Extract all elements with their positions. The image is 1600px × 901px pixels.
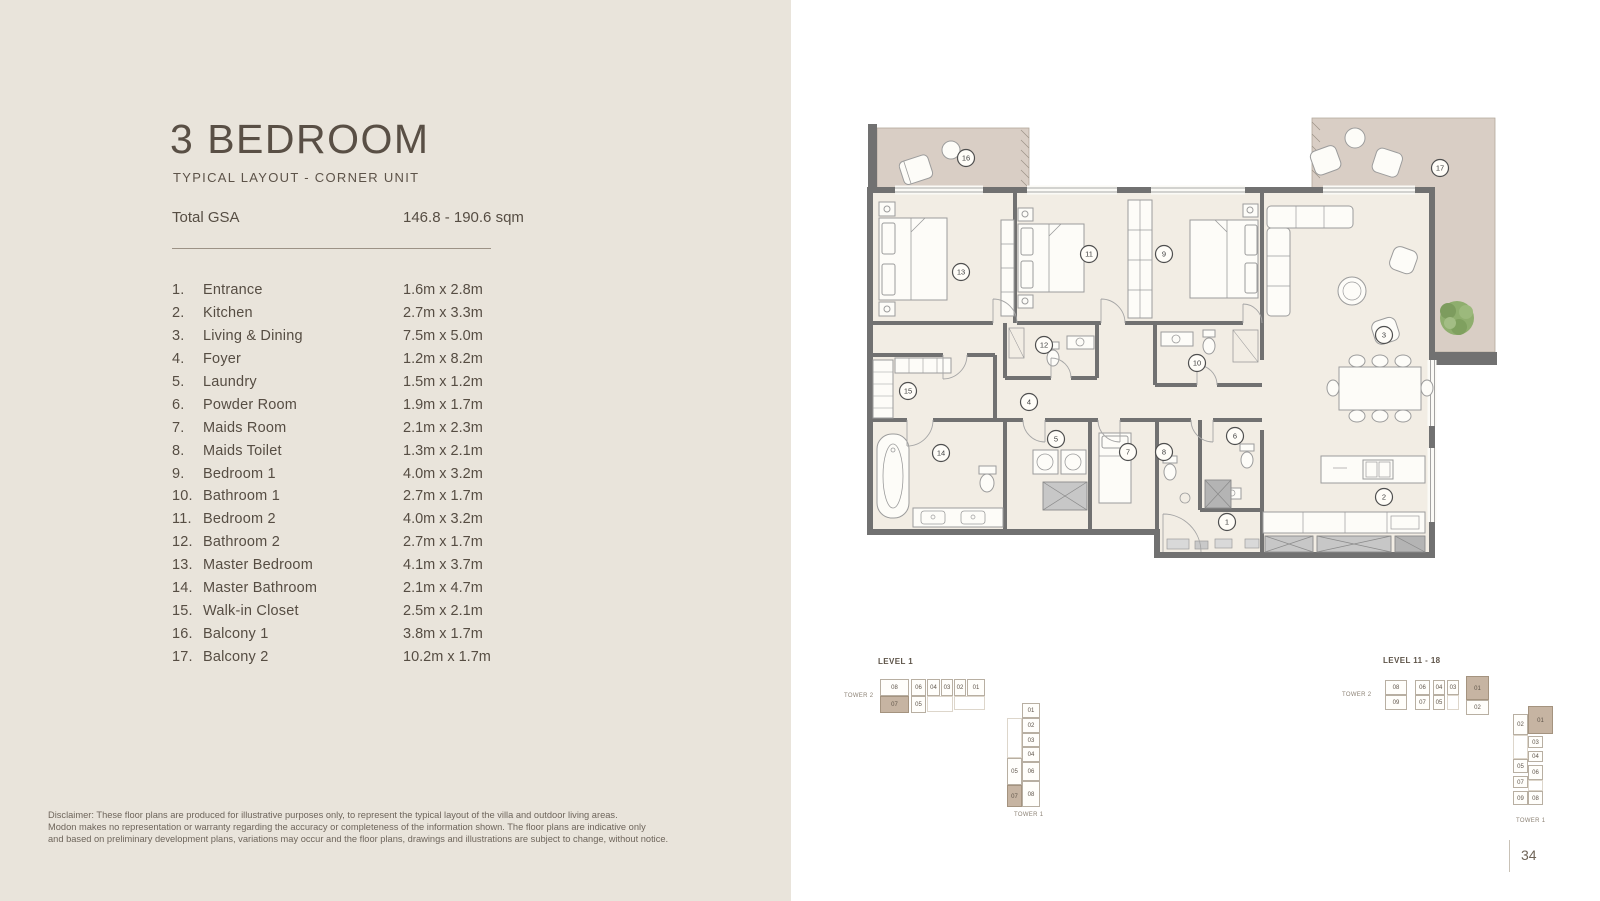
- room-name: Laundry: [203, 374, 403, 390]
- plan-marker-number: 3: [1382, 331, 1386, 340]
- plan-marker-number: 6: [1233, 432, 1237, 441]
- room-number: 17.: [172, 649, 203, 665]
- keyplan-unit-cell: 07: [1007, 785, 1022, 807]
- keyplan-unit-cell: 09: [1513, 791, 1528, 805]
- plan-marker-number: 8: [1162, 448, 1166, 457]
- plan-marker-number: 17: [1436, 164, 1444, 173]
- keyplan-unit-cell: 05: [911, 696, 926, 713]
- room-dimension-list: 1.Entrance1.6m x 2.8m2.Kitchen2.7m x 3.3…: [172, 279, 502, 668]
- room-name: Balcony 1: [203, 626, 403, 642]
- keyplan-title: LEVEL 11 - 18: [1383, 656, 1441, 665]
- keyplan-ghost-cell: [1528, 780, 1543, 791]
- room-dimensions: 2.1m x 2.3m: [403, 420, 502, 436]
- keyplan-tower1-label: TOWER 1: [1516, 818, 1545, 824]
- room-number: 4.: [172, 351, 203, 367]
- room-dimensions: 1.5m x 1.2m: [403, 374, 502, 390]
- page-subtitle: TYPICAL LAYOUT - CORNER UNIT: [173, 170, 419, 185]
- plan-marker-number: 7: [1126, 448, 1130, 457]
- keyplan-unit-cell: 05: [1513, 759, 1528, 773]
- room-number: 13.: [172, 557, 203, 573]
- room-name: Entrance: [203, 282, 403, 298]
- room-row: 1.Entrance1.6m x 2.8m: [172, 279, 502, 302]
- room-name: Kitchen: [203, 305, 403, 321]
- keyplan-ghost-cell: [1007, 718, 1022, 758]
- keyplan-unit-cell: 04: [1433, 680, 1445, 695]
- keyplan-unit-cell: 01: [1528, 706, 1553, 734]
- room-row: 8.Maids Toilet1.3m x 2.1m: [172, 439, 502, 462]
- keyplan-unit-cell: 08: [1022, 781, 1040, 807]
- keyplan-unit-cell: 01: [967, 679, 985, 696]
- keyplan-ghost-cell: [1513, 735, 1528, 759]
- keyplan-unit-cell: 06: [1415, 680, 1430, 695]
- room-name: Master Bathroom: [203, 580, 403, 596]
- keyplan-unit-cell: 08: [880, 679, 909, 696]
- keyplan-title: LEVEL 1: [878, 657, 913, 666]
- room-name: Bedroom 1: [203, 466, 403, 482]
- room-dimensions: 2.7m x 1.7m: [403, 488, 502, 504]
- room-name: Maids Room: [203, 420, 403, 436]
- keyplan-unit-cell: 01: [1466, 676, 1489, 700]
- plan-marker-number: 1: [1225, 518, 1229, 527]
- room-row: 15.Walk-in Closet2.5m x 2.1m: [172, 599, 502, 622]
- keyplan-unit-cell: 07: [1513, 776, 1528, 788]
- room-name: Bathroom 2: [203, 534, 403, 550]
- plan-marker-number: 9: [1162, 250, 1166, 259]
- room-number: 3.: [172, 328, 203, 344]
- room-name: Maids Toilet: [203, 443, 403, 459]
- room-row: 3.Living & Dining7.5m x 5.0m: [172, 325, 502, 348]
- plan-marker-number: 13: [957, 268, 965, 277]
- room-row: 9.Bedroom 14.0m x 3.2m: [172, 462, 502, 485]
- room-row: 14.Master Bathroom2.1m x 4.7m: [172, 577, 502, 600]
- room-name: Powder Room: [203, 397, 403, 413]
- keyplan-unit-cell: 04: [927, 679, 940, 696]
- room-dimensions: 4.0m x 3.2m: [403, 466, 502, 482]
- keyplan-unit-cell: 05: [1007, 758, 1022, 785]
- room-name: Foyer: [203, 351, 403, 367]
- room-dimensions: 1.2m x 8.2m: [403, 351, 502, 367]
- plan-marker-number: 15: [904, 387, 912, 396]
- room-number: 10.: [172, 488, 203, 504]
- keyplan-level-1: LEVEL 1TOWER 2TOWER 10806040302010705010…: [830, 640, 1070, 840]
- room-dimensions: 2.1m x 4.7m: [403, 580, 502, 596]
- keyplan-ghost-cell: [954, 696, 985, 710]
- room-row: 13.Master Bedroom4.1m x 3.7m: [172, 554, 502, 577]
- room-row: 11.Bedroom 24.0m x 3.2m: [172, 508, 502, 531]
- room-dimensions: 3.8m x 1.7m: [403, 626, 502, 642]
- page-number: 34: [1521, 847, 1537, 863]
- room-dimensions: 4.0m x 3.2m: [403, 511, 502, 527]
- room-number: 7.: [172, 420, 203, 436]
- keyplan-ghost-cell: [927, 696, 953, 712]
- keyplan-unit-cell: 06: [1528, 765, 1543, 780]
- room-number: 9.: [172, 466, 203, 482]
- gsa-label: Total GSA: [172, 209, 240, 226]
- divider-line: [172, 248, 491, 249]
- floor-plan: 1234567891011121314151617: [855, 108, 1515, 578]
- keyplan-unit-cell: 06: [911, 679, 926, 696]
- keyplan-tower2-label: TOWER 2: [844, 693, 873, 699]
- brochure-page: 3 BEDROOM TYPICAL LAYOUT - CORNER UNIT T…: [0, 0, 1600, 901]
- keyplan-unit-cell: 02: [1466, 700, 1489, 715]
- plan-marker-number: 11: [1085, 250, 1093, 259]
- plan-marker-number: 12: [1040, 341, 1048, 350]
- plan-marker-number: 2: [1382, 493, 1386, 502]
- keyplan-unit-cell: 02: [1022, 718, 1040, 733]
- keyplan-unit-cell: 06: [1022, 762, 1040, 781]
- page-number-divider: [1509, 840, 1510, 872]
- keyplan-unit-cell: 07: [880, 696, 909, 713]
- keyplan-unit-cell: 07: [1415, 695, 1430, 710]
- keyplan-unit-cell: 02: [954, 679, 966, 696]
- room-number: 15.: [172, 603, 203, 619]
- room-dimensions: 4.1m x 3.7m: [403, 557, 502, 573]
- keyplan-level-11-18: LEVEL 11 - 18TOWER 2TOWER 10806040301090…: [1330, 640, 1570, 840]
- room-number: 1.: [172, 282, 203, 298]
- page-title: 3 BEDROOM: [170, 116, 430, 163]
- room-number: 16.: [172, 626, 203, 642]
- room-number: 8.: [172, 443, 203, 459]
- room-name: Bedroom 2: [203, 511, 403, 527]
- plan-marker-number: 4: [1027, 398, 1031, 407]
- keyplan-unit-cell: 08: [1528, 791, 1543, 805]
- room-row: 5.Laundry1.5m x 1.2m: [172, 371, 502, 394]
- room-row: 7.Maids Room2.1m x 2.3m: [172, 416, 502, 439]
- keyplan-unit-cell: 03: [1022, 733, 1040, 747]
- keyplan-unit-cell: 04: [1528, 751, 1543, 762]
- plant: [1440, 301, 1474, 335]
- keyplan-tower2-label: TOWER 2: [1342, 692, 1371, 698]
- room-row: 4.Foyer1.2m x 8.2m: [172, 348, 502, 371]
- keyplan-unit-cell: 03: [941, 679, 953, 696]
- disclaimer-text: Disclaimer: These floor plans are produc…: [48, 810, 748, 845]
- left-info-panel: 3 BEDROOM TYPICAL LAYOUT - CORNER UNIT T…: [0, 0, 791, 901]
- room-row: 16.Balcony 13.8m x 1.7m: [172, 622, 502, 645]
- room-dimensions: 7.5m x 5.0m: [403, 328, 502, 344]
- room-dimensions: 10.2m x 1.7m: [403, 649, 502, 665]
- keyplan-unit-cell: 03: [1447, 680, 1459, 695]
- room-row: 12.Bathroom 22.7m x 1.7m: [172, 531, 502, 554]
- room-number: 2.: [172, 305, 203, 321]
- room-dimensions: 1.6m x 2.8m: [403, 282, 502, 298]
- plan-marker-number: 10: [1193, 359, 1201, 368]
- room-row: 17.Balcony 210.2m x 1.7m: [172, 645, 502, 668]
- room-dimensions: 2.7m x 1.7m: [403, 534, 502, 550]
- room-number: 12.: [172, 534, 203, 550]
- room-name: Bathroom 1: [203, 488, 403, 504]
- room-name: Master Bedroom: [203, 557, 403, 573]
- keyplan-unit-cell: 01: [1022, 703, 1040, 718]
- room-number: 14.: [172, 580, 203, 596]
- keyplan-unit-cell: 02: [1513, 714, 1528, 735]
- keyplan-unit-cell: 03: [1528, 736, 1543, 748]
- room-row: 6.Powder Room1.9m x 1.7m: [172, 393, 502, 416]
- room-dimensions: 1.9m x 1.7m: [403, 397, 502, 413]
- keyplan-unit-cell: 04: [1022, 747, 1040, 762]
- room-number: 5.: [172, 374, 203, 390]
- room-name: Living & Dining: [203, 328, 403, 344]
- plan-marker-number: 14: [937, 449, 945, 458]
- keyplan-unit-cell: 05: [1433, 695, 1445, 710]
- room-name: Balcony 2: [203, 649, 403, 665]
- plan-marker-number: 16: [962, 154, 970, 163]
- room-number: 6.: [172, 397, 203, 413]
- room-dimensions: 1.3m x 2.1m: [403, 443, 502, 459]
- keyplan-ghost-cell: [1447, 695, 1459, 710]
- room-row: 10.Bathroom 12.7m x 1.7m: [172, 485, 502, 508]
- keyplan-unit-cell: 08: [1385, 680, 1407, 695]
- keyplan-tower1-label: TOWER 1: [1014, 812, 1043, 818]
- room-number: 11.: [172, 511, 203, 527]
- room-row: 2.Kitchen2.7m x 3.3m: [172, 302, 502, 325]
- plan-marker-number: 5: [1054, 435, 1058, 444]
- room-name: Walk-in Closet: [203, 603, 403, 619]
- keyplan-unit-cell: 09: [1385, 695, 1407, 710]
- room-dimensions: 2.5m x 2.1m: [403, 603, 502, 619]
- gsa-value: 146.8 - 190.6 sqm: [403, 209, 524, 226]
- room-dimensions: 2.7m x 3.3m: [403, 305, 502, 321]
